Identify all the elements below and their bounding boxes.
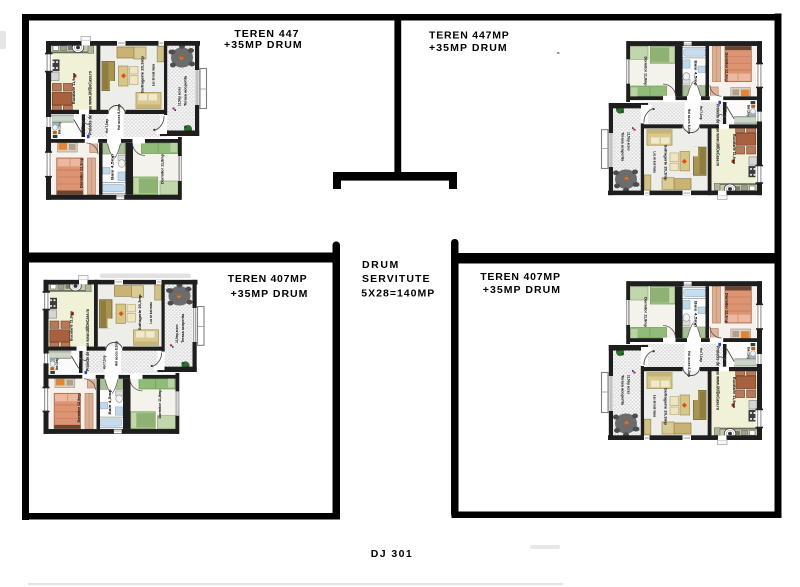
- svg-text:DJ 301: DJ 301: [371, 548, 413, 560]
- svg-text:5X28=140MP: 5X28=140MP: [361, 287, 435, 299]
- svg-text:TEREN 407MP: TEREN 407MP: [228, 273, 307, 285]
- svg-text:DRUM: DRUM: [362, 259, 400, 271]
- svg-text:TEREN 447MP: TEREN 447MP: [429, 30, 510, 42]
- svg-text:+35MP DRUM: +35MP DRUM: [231, 288, 309, 300]
- svg-text:+35MP DRUM: +35MP DRUM: [224, 39, 303, 51]
- svg-text:TEREN 407MP: TEREN 407MP: [480, 271, 561, 283]
- svg-text:+35MP DRUM: +35MP DRUM: [483, 284, 561, 296]
- svg-text:TEREN 447: TEREN 447: [234, 28, 299, 40]
- svg-text:+35MP DRUM: +35MP DRUM: [429, 42, 508, 54]
- svg-text:SERVITUTE: SERVITUTE: [362, 273, 431, 285]
